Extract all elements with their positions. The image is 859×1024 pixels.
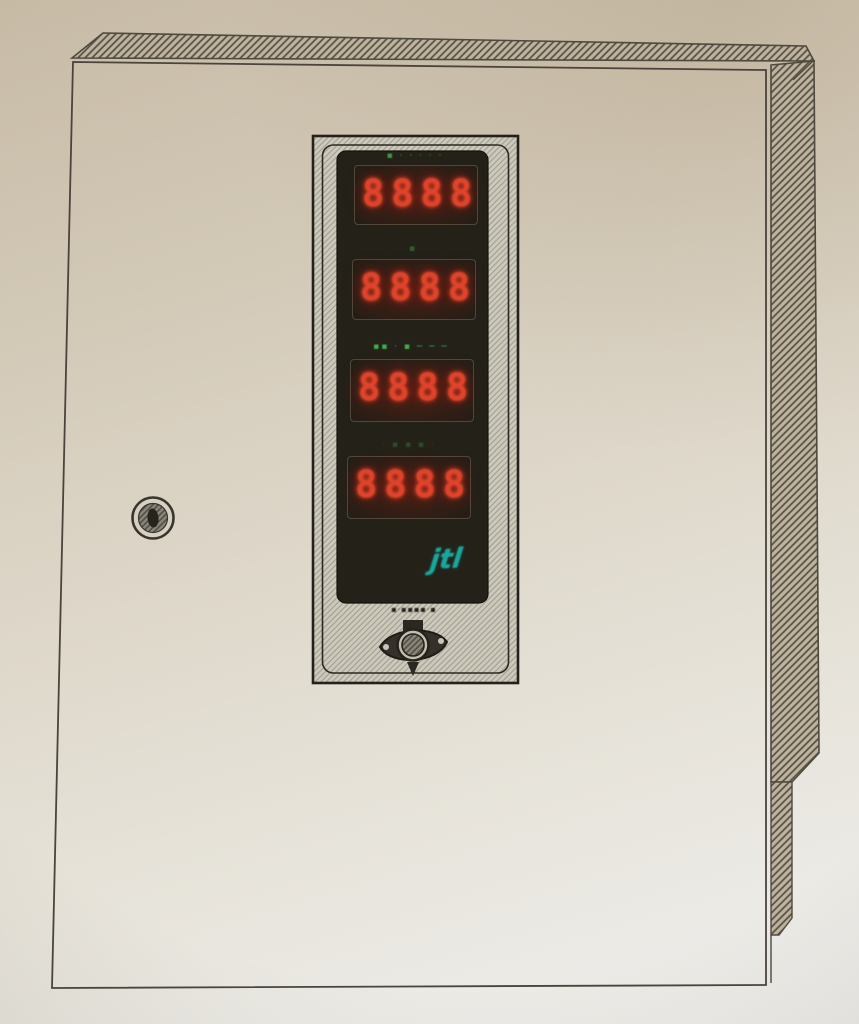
brand-logo: jtl xyxy=(404,539,489,581)
display-indicator-label: ▪▪ · ▪ ─ ─ ─ xyxy=(349,341,473,354)
seven-segment-value: 8888 xyxy=(348,457,470,513)
display-indicator-label: ▪ xyxy=(351,243,475,256)
knob-screw-left xyxy=(383,644,389,650)
knob-screw-right xyxy=(438,638,444,644)
photo-background: ▪ · · · · · 8888 ▪ 8888 ▪▪ · ▪ ─ ─ ─ 888… xyxy=(0,0,859,1024)
panel-emblem: ▪·▪▪▪▪·▪ xyxy=(374,604,454,616)
knob-cap xyxy=(402,634,424,656)
enclosure-side-flange xyxy=(771,782,792,935)
seven-segment-display-2: 8888 xyxy=(352,259,476,320)
enclosure-side-face xyxy=(771,61,819,782)
seven-segment-value: 8888 xyxy=(353,260,475,316)
seven-segment-display-4: 8888 xyxy=(347,456,471,519)
display-indicator-label: ▪ · · · · · xyxy=(353,150,477,163)
enclosure-top-face xyxy=(72,33,814,61)
seven-segment-display-3: 8888 xyxy=(350,359,474,422)
seven-segment-display-1: 8888 xyxy=(354,165,478,225)
display-indicator-label: · ▪ ▪ ▪ · xyxy=(347,439,471,452)
seven-segment-value: 8888 xyxy=(351,360,473,416)
seven-segment-value: 8888 xyxy=(355,166,477,222)
door-lock[interactable] xyxy=(133,498,174,539)
